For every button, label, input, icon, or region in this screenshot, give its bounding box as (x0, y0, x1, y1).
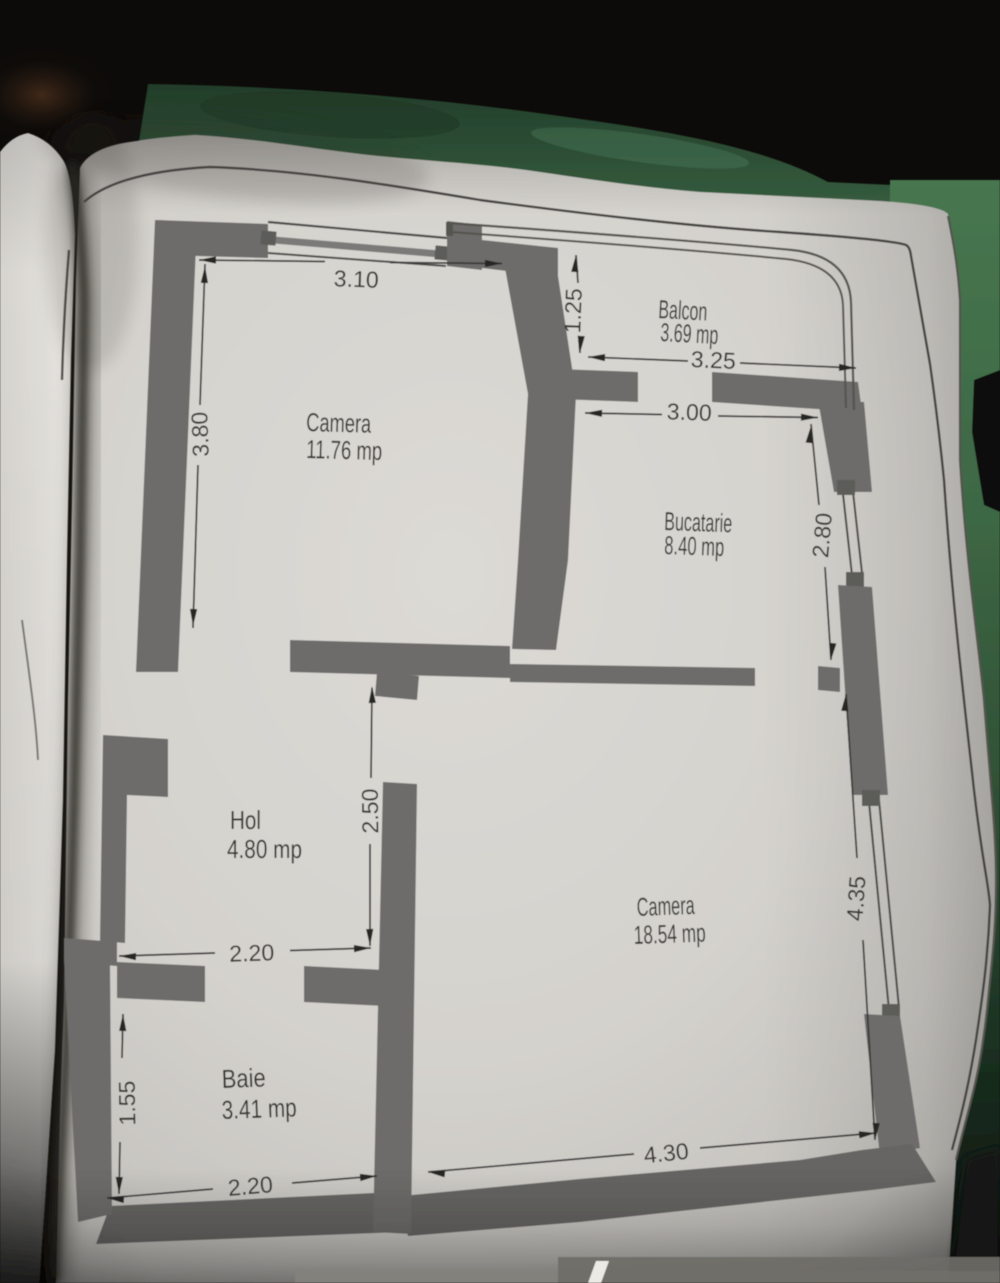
svg-text:3.25: 3.25 (690, 346, 736, 374)
svg-text:3.00: 3.00 (666, 398, 712, 426)
svg-text:4.80 mp: 4.80 mp (227, 834, 302, 864)
svg-text:3.10: 3.10 (333, 265, 379, 293)
svg-text:2.50: 2.50 (357, 788, 383, 833)
svg-text:8.40 mp: 8.40 mp (664, 530, 725, 562)
svg-text:Hol: Hol (230, 805, 261, 835)
svg-text:3.69 mp: 3.69 mp (660, 317, 719, 350)
svg-text:11.76 mp: 11.76 mp (306, 434, 383, 466)
svg-text:2.80: 2.80 (807, 512, 837, 559)
svg-text:1.25: 1.25 (559, 288, 587, 334)
svg-text:3.80: 3.80 (186, 411, 214, 457)
